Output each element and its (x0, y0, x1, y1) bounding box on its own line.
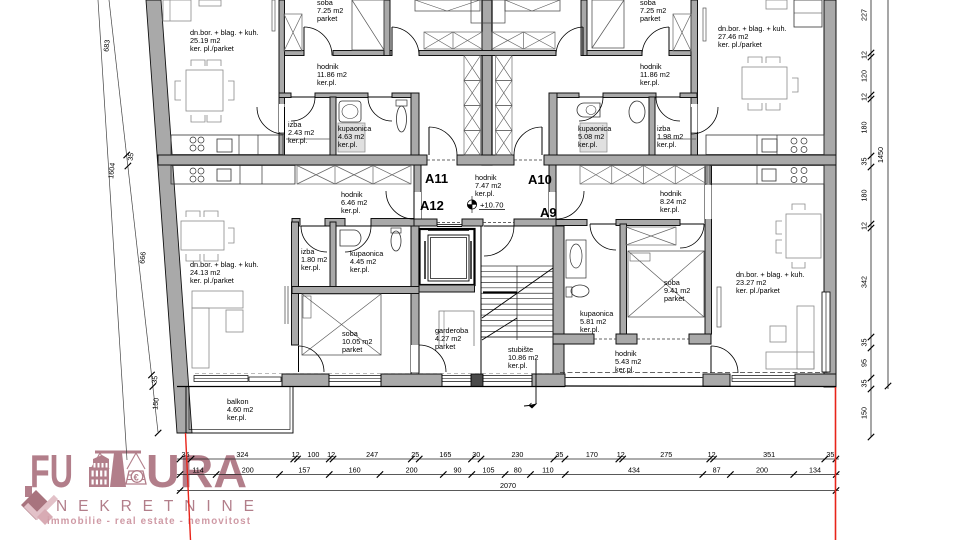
svg-text:120: 120 (860, 70, 869, 82)
svg-text:ker.pl.: ker.pl. (615, 365, 634, 374)
svg-text:157: 157 (298, 465, 310, 474)
svg-text:12: 12 (860, 222, 869, 230)
svg-text:80: 80 (514, 465, 522, 474)
svg-text:114: 114 (192, 465, 203, 474)
svg-text:12: 12 (708, 450, 716, 459)
svg-text:434: 434 (628, 465, 640, 474)
svg-text:351: 351 (763, 450, 775, 459)
svg-text:110: 110 (542, 465, 553, 474)
svg-text:ker. pl./parket: ker. pl./parket (190, 44, 234, 53)
svg-text:35: 35 (826, 450, 834, 459)
svg-text:parket: parket (640, 14, 660, 23)
svg-text:ker.pl.: ker.pl. (657, 140, 676, 149)
svg-text:683: 683 (101, 39, 111, 52)
svg-text:12: 12 (617, 450, 625, 459)
svg-text:275: 275 (660, 450, 672, 459)
svg-text:105: 105 (482, 465, 494, 474)
svg-text:35: 35 (182, 450, 190, 459)
svg-text:180: 180 (860, 190, 869, 202)
svg-text:150: 150 (860, 407, 869, 419)
svg-text:ker.pl.: ker.pl. (508, 361, 527, 370)
svg-text:324: 324 (236, 450, 248, 459)
svg-text:12: 12 (860, 93, 869, 101)
svg-text:30: 30 (472, 450, 480, 459)
svg-text:35: 35 (860, 380, 869, 388)
svg-text:ker. pl./parket: ker. pl./parket (718, 40, 762, 49)
svg-text:1604: 1604 (106, 162, 117, 179)
svg-text:95: 95 (860, 359, 869, 367)
svg-text:ker.pl.: ker.pl. (338, 140, 357, 149)
svg-text:€: € (134, 473, 140, 484)
svg-text:ker.pl.: ker.pl. (227, 413, 246, 422)
svg-text:parket: parket (435, 342, 455, 351)
svg-text:ker.pl.: ker.pl. (640, 78, 659, 87)
svg-text:parket: parket (317, 14, 337, 23)
svg-text:2070: 2070 (500, 481, 516, 490)
svg-text:150: 150 (150, 397, 160, 410)
svg-text:ker.pl.: ker.pl. (660, 205, 679, 214)
svg-text:+10.70: +10.70 (480, 201, 503, 210)
svg-text:ker.pl.: ker.pl. (317, 78, 336, 87)
svg-text:35: 35 (860, 339, 869, 347)
svg-text:100: 100 (307, 450, 319, 459)
svg-text:227: 227 (860, 9, 869, 21)
svg-text:165: 165 (439, 450, 451, 459)
svg-text:25: 25 (411, 450, 419, 459)
svg-text:35: 35 (126, 152, 136, 161)
svg-text:200: 200 (756, 465, 768, 474)
svg-text:ker.pl.: ker.pl. (341, 206, 360, 215)
svg-text:666: 666 (137, 251, 147, 264)
svg-text:A12: A12 (420, 198, 444, 213)
svg-text:170: 170 (586, 450, 598, 459)
svg-text:ker. pl./parket: ker. pl./parket (736, 286, 780, 295)
svg-text:12: 12 (327, 450, 335, 459)
svg-text:A9: A9 (540, 205, 557, 220)
svg-text:ker. pl./parket: ker. pl./parket (190, 276, 234, 285)
svg-text:1450: 1450 (876, 147, 885, 163)
svg-text:200: 200 (406, 465, 418, 474)
svg-text:230: 230 (511, 450, 523, 459)
svg-text:ker.pl.: ker.pl. (578, 140, 597, 149)
svg-text:A10: A10 (528, 172, 552, 187)
svg-text:FU: FU (30, 445, 73, 497)
svg-text:12: 12 (860, 51, 869, 59)
svg-text:35: 35 (860, 158, 869, 166)
svg-text:ker.pl.: ker.pl. (288, 136, 307, 145)
svg-text:35: 35 (150, 375, 160, 384)
svg-text:200: 200 (242, 465, 254, 474)
svg-text:160: 160 (349, 465, 361, 474)
svg-text:247: 247 (366, 450, 378, 459)
svg-text:342: 342 (860, 276, 869, 288)
svg-text:35: 35 (555, 450, 563, 459)
svg-text:parket: parket (342, 345, 362, 354)
svg-text:ker.pl.: ker.pl. (301, 263, 320, 272)
svg-text:parket: parket (664, 294, 684, 303)
svg-text:immobilie - real estate - nemo: immobilie - real estate - nemovitost (47, 516, 251, 527)
svg-text:87: 87 (713, 465, 721, 474)
svg-text:ker.pl.: ker.pl. (475, 189, 494, 198)
svg-text:A11: A11 (425, 171, 448, 186)
svg-text:12: 12 (292, 450, 300, 459)
svg-text:90: 90 (454, 465, 462, 474)
svg-text:180: 180 (860, 122, 869, 134)
svg-text:ker.pl.: ker.pl. (580, 325, 599, 334)
svg-text:134: 134 (809, 465, 821, 474)
svg-text:ker.pl.: ker.pl. (350, 265, 369, 274)
